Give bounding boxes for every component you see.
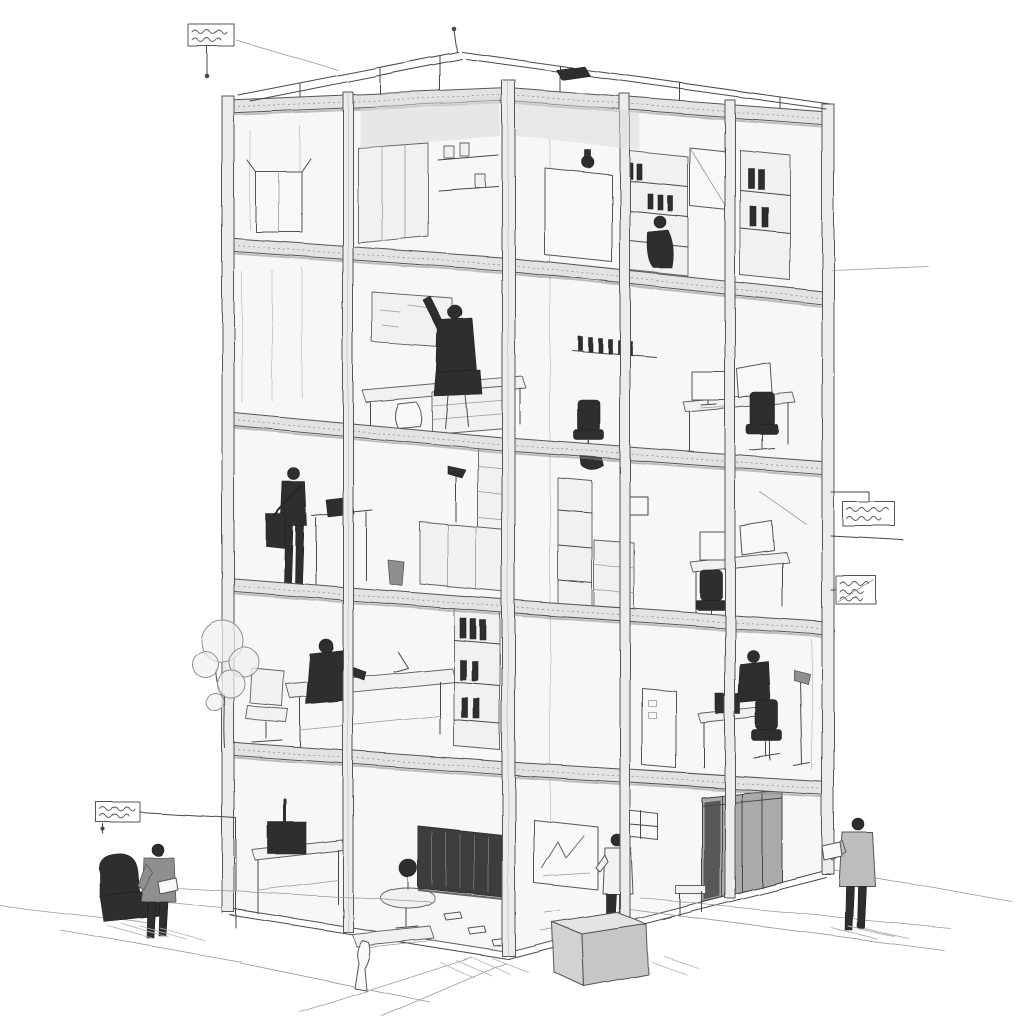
column-front-corner bbox=[502, 80, 515, 956]
monitor bbox=[700, 532, 728, 560]
locker-bank bbox=[702, 790, 782, 902]
white-crouching-shape bbox=[395, 402, 421, 428]
building bbox=[222, 27, 834, 956]
dark-machine bbox=[268, 822, 306, 854]
monitor bbox=[740, 521, 774, 555]
whiteboard bbox=[534, 820, 598, 890]
corridor-ground bbox=[418, 826, 512, 900]
cutaway-building-sketch bbox=[0, 0, 1024, 1024]
waste-bin bbox=[388, 560, 404, 586]
sketch-page bbox=[0, 0, 1024, 1024]
column-left-corner bbox=[222, 96, 234, 912]
column-right-mid-1 bbox=[620, 94, 630, 924]
column-right-corner bbox=[822, 104, 834, 874]
crate bbox=[552, 912, 648, 986]
column-right-mid-2 bbox=[725, 100, 735, 898]
monitor bbox=[692, 372, 726, 400]
